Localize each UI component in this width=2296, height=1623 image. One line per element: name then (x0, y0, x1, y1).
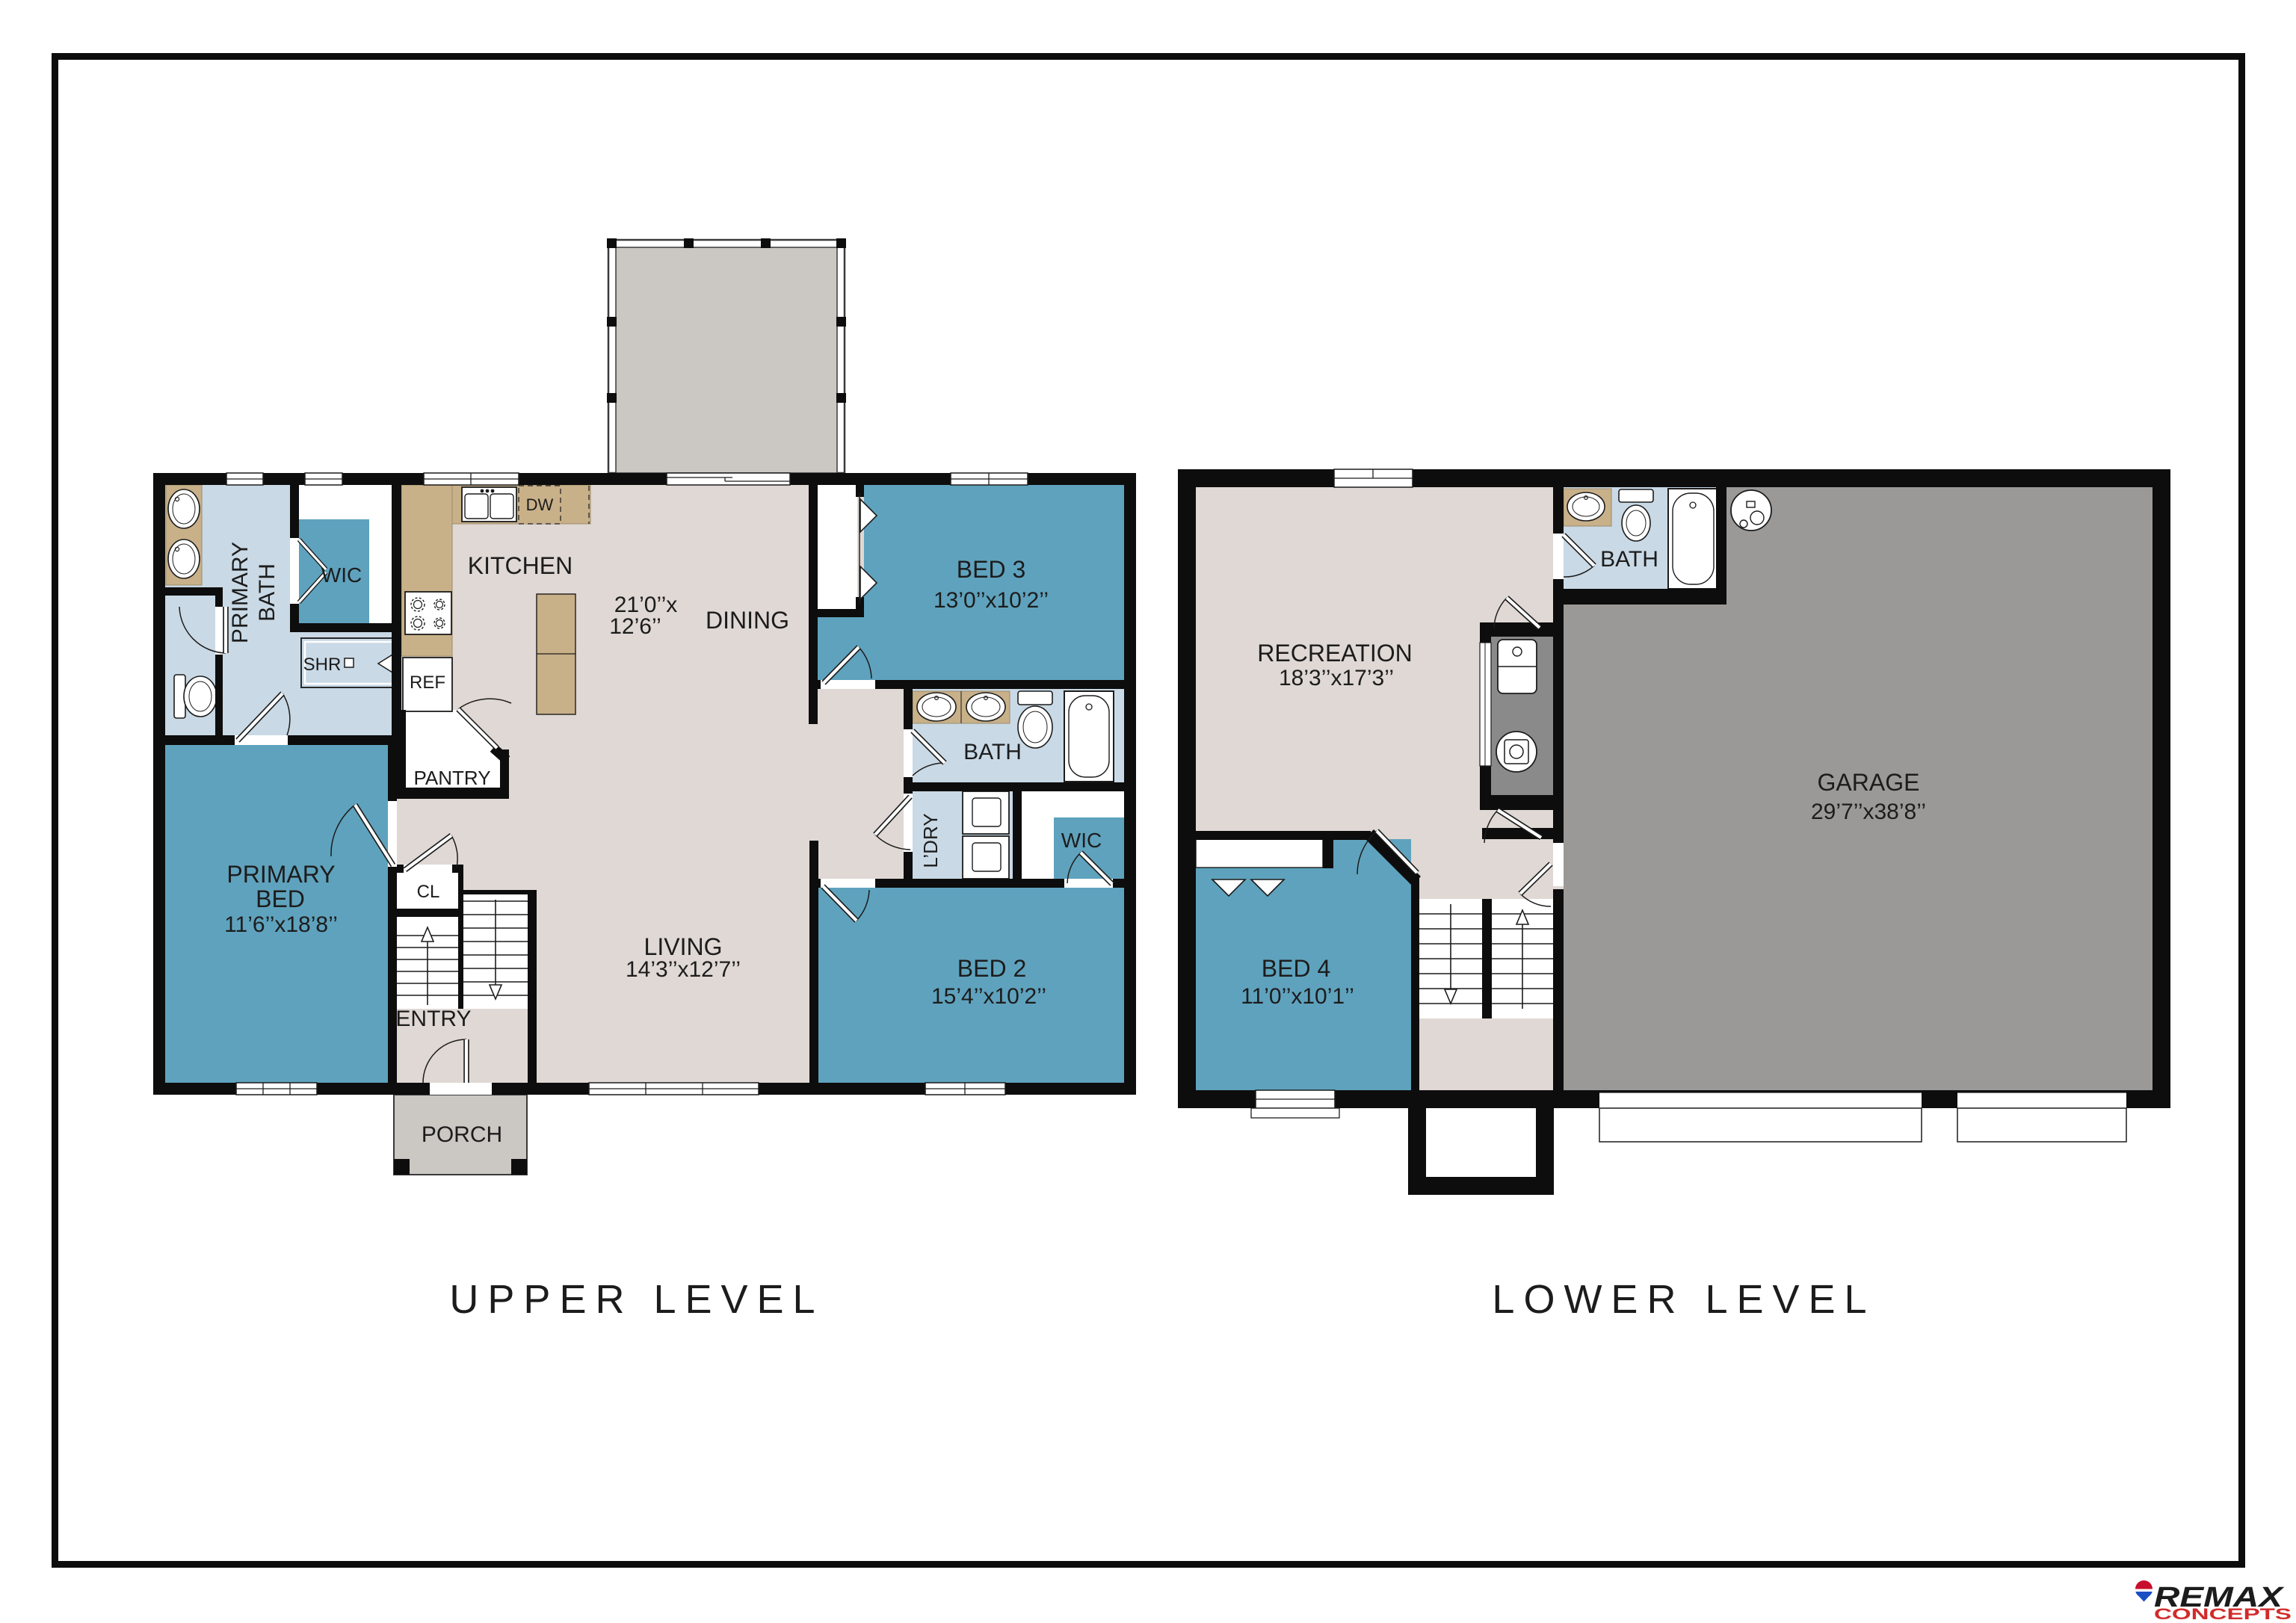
svg-text:14’3’’x12’7’’: 14’3’’x12’7’’ (626, 957, 741, 982)
svg-text:WIC: WIC (321, 563, 362, 587)
svg-text:L’DRY: L’DRY (919, 813, 942, 868)
svg-text:BED: BED (256, 885, 305, 912)
svg-text:11’0’’x10’1’’: 11’0’’x10’1’’ (1241, 984, 1354, 1009)
svg-text:GARAGE: GARAGE (1818, 769, 1920, 796)
svg-text:15’4’’x10’2’’: 15’4’’x10’2’’ (931, 984, 1046, 1009)
svg-text:PRIMARY: PRIMARY (228, 542, 253, 643)
svg-text:LOWER LEVEL: LOWER LEVEL (1492, 1277, 1875, 1322)
svg-text:12’6’’: 12’6’’ (609, 614, 661, 639)
svg-text:SHR: SHR (303, 655, 342, 675)
svg-text:BATH: BATH (963, 740, 1022, 764)
svg-text:CL: CL (417, 882, 440, 902)
svg-text:UPPER LEVEL: UPPER LEVEL (449, 1277, 824, 1322)
svg-text:WIC: WIC (1061, 829, 1102, 852)
svg-text:REF: REF (410, 673, 445, 693)
svg-text:BATH: BATH (255, 563, 280, 622)
svg-text:PORCH: PORCH (422, 1122, 502, 1147)
svg-text:BED 2: BED 2 (957, 955, 1026, 982)
svg-text:13’0’’x10’2’’: 13’0’’x10’2’’ (933, 588, 1049, 613)
svg-text:BED 4: BED 4 (1262, 955, 1330, 982)
svg-text:ENTRY: ENTRY (395, 1007, 471, 1031)
svg-text:DINING: DINING (706, 607, 789, 634)
svg-text:11’6’’x18’8’’: 11’6’’x18’8’’ (224, 912, 338, 937)
svg-text:CONCEPTS: CONCEPTS (2154, 1606, 2292, 1623)
svg-text:LIVING: LIVING (644, 933, 723, 960)
svg-text:BED 3: BED 3 (957, 556, 1025, 583)
svg-text:PANTRY: PANTRY (413, 767, 490, 789)
svg-text:PRIMARY: PRIMARY (226, 861, 335, 888)
svg-text:18’3’’x17’3’’: 18’3’’x17’3’’ (1279, 666, 1394, 690)
svg-text:BATH: BATH (1600, 547, 1658, 572)
svg-text:DW: DW (526, 495, 554, 514)
svg-text:RECREATION: RECREATION (1257, 640, 1412, 667)
svg-text:29’7’’x38’8’’: 29’7’’x38’8’’ (1811, 800, 1926, 824)
svg-text:KITCHEN: KITCHEN (468, 552, 573, 579)
